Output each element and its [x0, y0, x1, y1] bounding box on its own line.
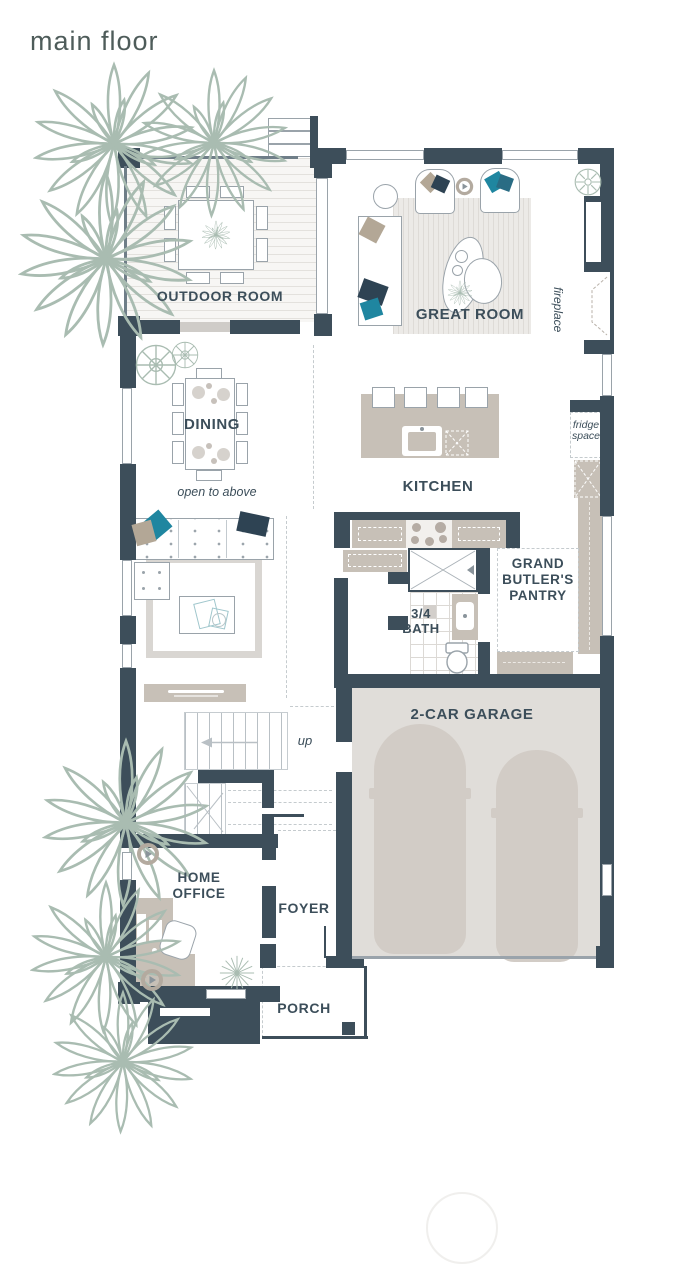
wall-segment	[478, 548, 490, 594]
wall-segment	[330, 148, 346, 164]
decor-circle	[452, 265, 463, 276]
stairs-up-label: up	[292, 734, 318, 748]
counter-line	[503, 662, 565, 664]
wall-segment	[262, 814, 274, 836]
wall-segment	[334, 674, 614, 688]
dishwasher-icon	[445, 430, 469, 456]
shower-icon	[408, 548, 478, 592]
car	[374, 724, 466, 954]
wall-segment	[334, 578, 348, 674]
place-setting	[211, 398, 217, 404]
wall-segment	[600, 396, 614, 516]
place-setting	[211, 458, 217, 464]
side-table	[134, 562, 170, 600]
wall-segment	[120, 464, 136, 560]
dashed-line	[228, 790, 332, 791]
chair	[220, 272, 244, 284]
wall-segment	[596, 946, 614, 968]
room-label-pantry: GRAND BUTLER'S PANTRY	[494, 556, 582, 604]
car-mirror	[491, 808, 498, 818]
wall-segment	[424, 148, 502, 164]
place-setting	[217, 448, 230, 461]
room-label-office: HOME OFFICE	[164, 870, 234, 902]
sprig-icon	[446, 280, 474, 306]
console	[144, 684, 246, 702]
bar-stool	[404, 387, 427, 408]
centerpiece-icon	[196, 220, 236, 250]
bar-stool	[372, 387, 395, 408]
fireplace-niche	[586, 202, 601, 262]
dashed-line	[228, 802, 332, 803]
shrub-icon	[170, 340, 200, 370]
room-label-outdoor: OUTDOOR ROOM	[150, 288, 290, 305]
wall-segment	[314, 314, 332, 336]
place-setting	[192, 386, 205, 399]
dashed-line	[228, 824, 332, 825]
window	[206, 989, 246, 999]
window	[122, 560, 132, 616]
floor-plan: main floor OUTDOOR ROOM fireplace	[0, 0, 700, 1270]
counter-line	[458, 527, 500, 541]
wall-segment	[570, 400, 604, 412]
toilet-icon	[442, 642, 472, 674]
sunburst-icon	[218, 954, 256, 992]
wall-segment	[120, 616, 136, 644]
porch-edge	[364, 966, 367, 1039]
window	[122, 644, 132, 668]
car-mirror	[464, 788, 471, 799]
garage-door	[352, 956, 600, 959]
chair	[172, 441, 184, 464]
fridge-space-label: fridge space	[568, 420, 604, 442]
porch-edge	[262, 1036, 368, 1039]
counter-line	[348, 554, 402, 567]
place-setting	[192, 446, 205, 459]
wall-segment	[478, 642, 490, 676]
room-label-garage: 2-CAR GARAGE	[402, 706, 542, 724]
wall-segment	[262, 848, 276, 860]
counter-line	[358, 527, 402, 541]
wall-segment	[336, 688, 352, 962]
watermark-circle	[426, 1192, 498, 1264]
open-to-above-note: open to above	[176, 486, 258, 499]
wall-segment	[506, 512, 520, 548]
room-label-kitchen: KITCHEN	[402, 478, 474, 496]
window	[602, 864, 612, 896]
wall-segment	[334, 512, 350, 548]
place-setting	[206, 383, 212, 389]
ceiling-fan-icon	[572, 166, 604, 198]
decor-circle	[455, 250, 468, 263]
page-title: main floor	[30, 26, 159, 57]
speaker-icon	[136, 842, 160, 866]
window	[122, 388, 132, 464]
speaker-icon	[455, 177, 474, 196]
fireplace-label: fireplace	[544, 264, 564, 356]
window	[316, 178, 328, 314]
plant-icon	[18, 168, 194, 350]
dashed-line	[290, 706, 334, 707]
sofa-seam	[178, 520, 179, 558]
chair	[236, 441, 248, 464]
bar-stool	[465, 387, 488, 408]
stair-break-line	[184, 783, 226, 835]
wall-segment	[262, 770, 274, 808]
room-label-great: GREAT ROOM	[414, 306, 526, 324]
room-label-bath: 3/4 BATH	[396, 606, 446, 637]
speaker-icon	[140, 968, 164, 992]
window	[122, 852, 132, 880]
wall-segment	[336, 948, 352, 966]
chair	[196, 470, 222, 481]
coffee-table	[179, 596, 235, 634]
chair	[236, 383, 248, 406]
window	[502, 150, 578, 160]
counter-line	[589, 502, 591, 650]
room-label-foyer: FOYER	[274, 900, 334, 917]
room-label-dining: DINING	[182, 416, 242, 434]
up-arrow-icon	[198, 736, 260, 749]
porch-post	[342, 1022, 355, 1035]
window	[602, 354, 612, 396]
bar-stool	[437, 387, 460, 408]
sink-icon	[456, 602, 474, 630]
place-setting	[217, 388, 230, 401]
place-setting	[206, 443, 212, 449]
sofa-seam	[226, 520, 227, 558]
ceiling-break-line	[286, 516, 287, 698]
room-label-porch: PORCH	[274, 1000, 334, 1017]
fireplace-icon	[584, 272, 610, 340]
car	[496, 750, 578, 962]
cooktop-icon	[406, 520, 452, 548]
stoop-step	[160, 1008, 210, 1016]
car-mirror	[576, 808, 583, 818]
wall-segment	[350, 512, 508, 520]
wall-segment	[388, 572, 408, 584]
appliance	[574, 460, 602, 498]
side-table	[373, 184, 398, 209]
dashed-line	[278, 830, 336, 831]
wall-segment	[260, 944, 276, 968]
ceiling-break-line	[313, 345, 314, 509]
wall-segment	[230, 320, 300, 334]
wall-segment	[310, 116, 318, 160]
window	[346, 150, 424, 160]
door-leaf	[324, 926, 326, 958]
garage-door-opening	[336, 742, 352, 772]
window	[602, 516, 612, 636]
chair	[256, 238, 268, 262]
sink-icon	[402, 426, 442, 456]
car-mirror	[369, 788, 376, 799]
shower-head-icon	[467, 565, 474, 575]
